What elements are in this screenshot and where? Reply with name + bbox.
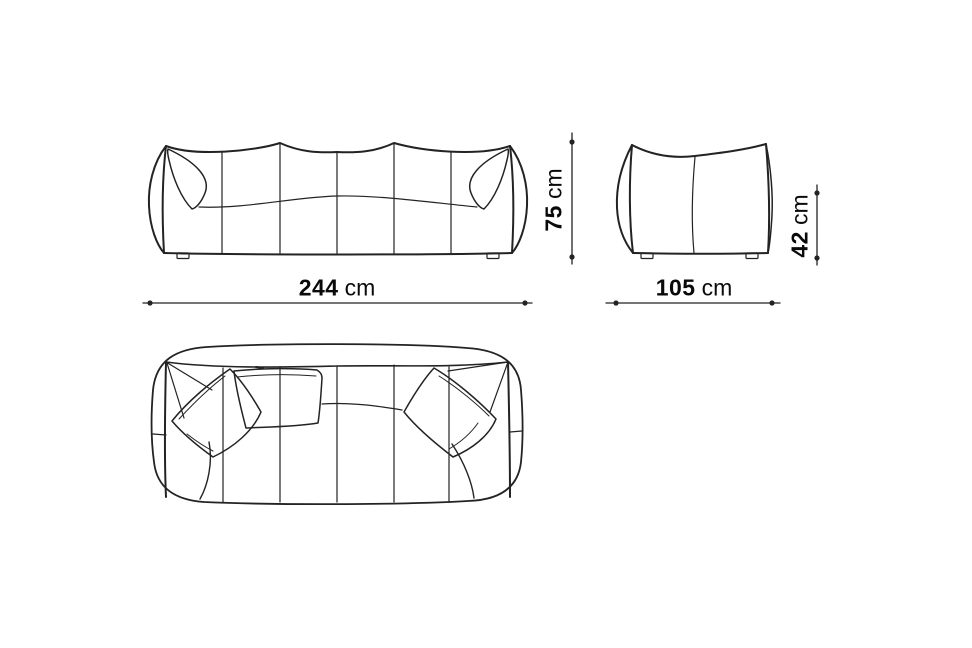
seat-height-dimension-value: 42 xyxy=(787,231,813,258)
depth-dimension-label: 105cm xyxy=(656,277,733,300)
top-center-pillow-notch xyxy=(256,367,263,368)
front-right-edge xyxy=(510,146,513,253)
width-dimension-label: 244cm xyxy=(299,277,376,300)
top-right-pillow xyxy=(404,368,496,457)
side-top-edge xyxy=(632,144,766,157)
dimension-end-dot xyxy=(814,190,819,195)
side-view xyxy=(617,144,772,259)
height-dimension-unit: cm xyxy=(541,168,567,199)
top-left-pillow-seam xyxy=(179,376,225,419)
dimension-end-dot xyxy=(147,300,152,305)
technical-drawing-canvas: 244cm 75cm 105cm 42cm xyxy=(0,0,972,648)
side-left-edge xyxy=(630,145,633,253)
dimension-end-dot xyxy=(613,300,618,305)
top-left-corner-line xyxy=(165,362,166,497)
height-dimension-value: 75 xyxy=(541,205,567,232)
width-dimension-value: 244 xyxy=(299,275,339,301)
front-top-edge xyxy=(166,143,510,152)
top-right-pillow-seam xyxy=(439,376,489,416)
front-seat-line xyxy=(199,196,477,207)
top-center-pillow xyxy=(234,369,322,428)
front-view xyxy=(149,143,527,259)
dimension-end-dot xyxy=(569,139,574,144)
top-right-corner-line xyxy=(508,362,510,497)
dimension-end-dot xyxy=(569,254,574,259)
top-right-side-seam xyxy=(510,431,522,432)
seat-height-dimension-unit: cm xyxy=(787,194,813,225)
top-right-arm-fold-line xyxy=(490,362,508,412)
top-right-arm-fold-line xyxy=(448,362,508,371)
dimension-end-dot xyxy=(769,300,774,305)
width-dimension-unit: cm xyxy=(345,275,376,301)
front-left-edge xyxy=(163,146,166,253)
front-left-armrest-cushion xyxy=(168,149,207,209)
front-bottom-edge xyxy=(164,253,512,255)
depth-dimension-value: 105 xyxy=(656,275,696,301)
seat-height-dimension-label: 42cm xyxy=(789,194,812,257)
sofa-dimension-drawing xyxy=(0,0,972,648)
top-center-pillow-seam xyxy=(237,375,316,377)
dimension-end-dot xyxy=(814,255,819,260)
front-right-armrest-cushion xyxy=(470,149,509,209)
dimension-end-dot xyxy=(522,300,527,305)
side-center-seam xyxy=(692,157,695,253)
height-dimension-label: 75cm xyxy=(543,168,566,231)
depth-dimension-unit: cm xyxy=(702,275,733,301)
top-view xyxy=(152,344,523,504)
top-seat-front-line xyxy=(322,403,402,410)
